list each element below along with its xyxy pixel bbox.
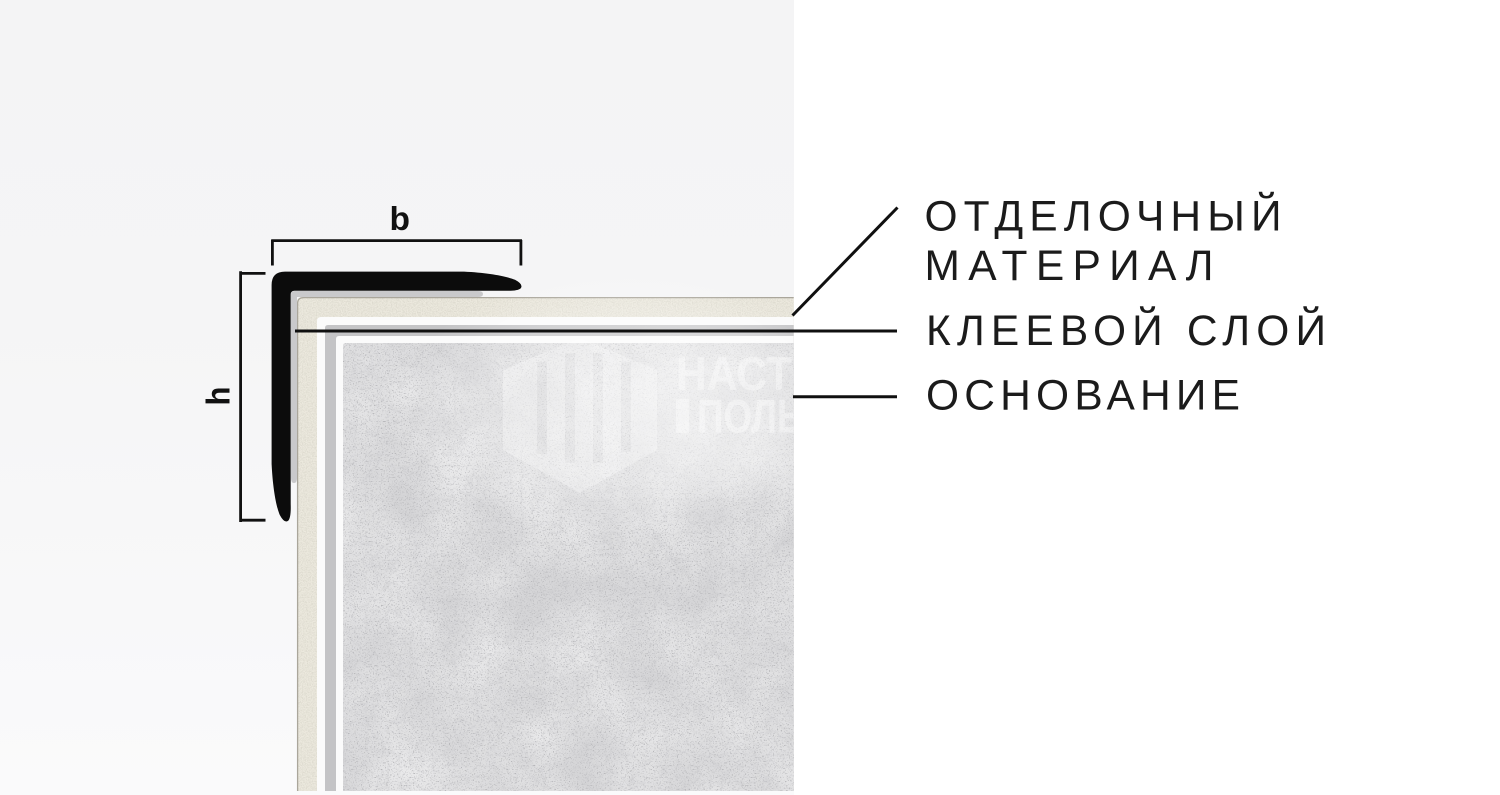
svg-text:h: h	[200, 387, 237, 406]
svg-text:ОТДЕЛОЧНЫЙ: ОТДЕЛОЧНЫЙ	[925, 192, 1282, 241]
svg-text:b: b	[390, 200, 411, 237]
svg-text:ОСНОВАНИЕ: ОСНОВАНИЕ	[926, 373, 1240, 420]
svg-text:КЛЕЕВОЙ СЛОЙ: КЛЕЕВОЙ СЛОЙ	[926, 306, 1326, 355]
svg-text:МАТЕРИАЛ: МАТЕРИАЛ	[925, 243, 1214, 290]
